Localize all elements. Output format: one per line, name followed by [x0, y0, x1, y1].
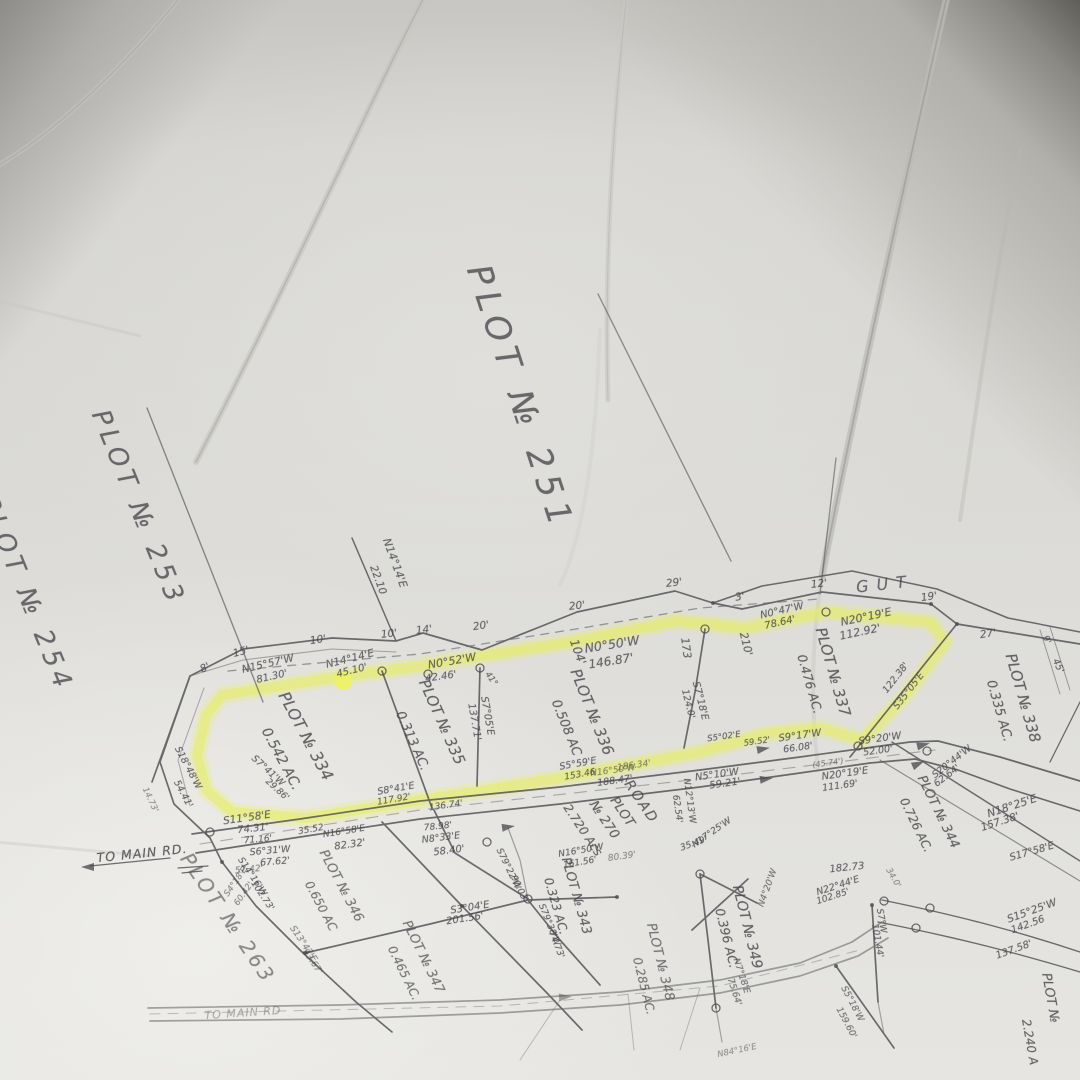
north-boundary-line: [152, 591, 1080, 782]
map-label: 173: [678, 637, 694, 660]
map-label: 27': [979, 627, 997, 641]
survey-map-photo: PLOT № 251PLOT № 253PLOT № 254PLOT № 263…: [0, 0, 1080, 1080]
map-label: 14': [415, 623, 432, 637]
map-label: 20': [568, 599, 585, 613]
map-label: 10': [309, 633, 327, 647]
to-main-rd-arrowhead: [81, 863, 94, 871]
map-label: 19': [920, 590, 938, 604]
map-label: 12': [810, 577, 827, 591]
map-label: 10': [380, 627, 397, 641]
map-label: 20': [472, 619, 490, 633]
map-label: 29': [665, 576, 682, 590]
map-label: 3': [734, 590, 746, 603]
